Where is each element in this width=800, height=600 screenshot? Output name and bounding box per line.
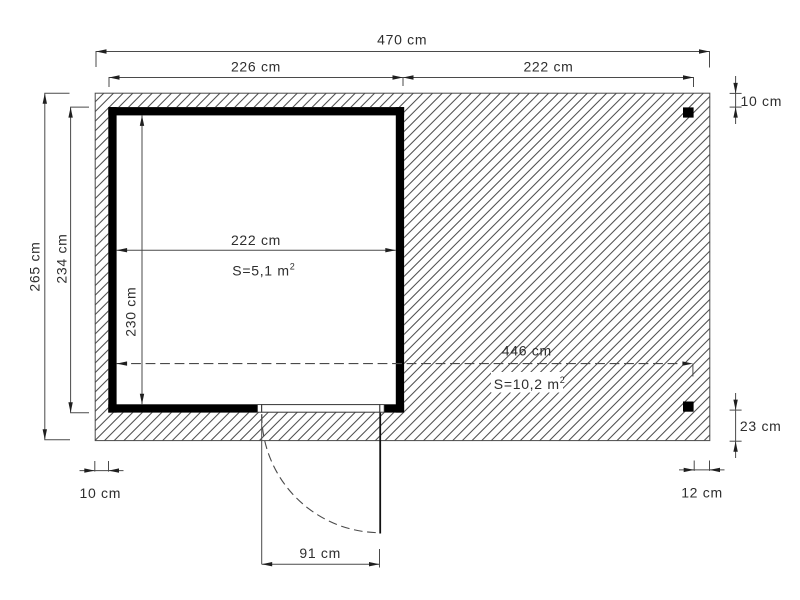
svg-text:230 cm: 230 cm bbox=[123, 287, 139, 337]
svg-text:12 cm: 12 cm bbox=[681, 484, 723, 500]
svg-text:S=10,2 m2: S=10,2 m2 bbox=[494, 375, 566, 392]
svg-text:265 cm: 265 cm bbox=[27, 241, 43, 291]
svg-text:222 cm: 222 cm bbox=[523, 59, 573, 75]
svg-text:222 cm: 222 cm bbox=[231, 232, 281, 248]
svg-text:446 cm: 446 cm bbox=[502, 343, 552, 359]
svg-text:226 cm: 226 cm bbox=[231, 59, 281, 75]
svg-text:234 cm: 234 cm bbox=[53, 233, 69, 283]
svg-text:10 cm: 10 cm bbox=[79, 485, 121, 501]
svg-text:23 cm: 23 cm bbox=[740, 418, 782, 434]
svg-text:470 cm: 470 cm bbox=[377, 32, 427, 48]
svg-text:91 cm: 91 cm bbox=[299, 545, 341, 561]
svg-text:S=5,1 m2: S=5,1 m2 bbox=[232, 261, 295, 278]
svg-text:10 cm: 10 cm bbox=[741, 93, 783, 109]
